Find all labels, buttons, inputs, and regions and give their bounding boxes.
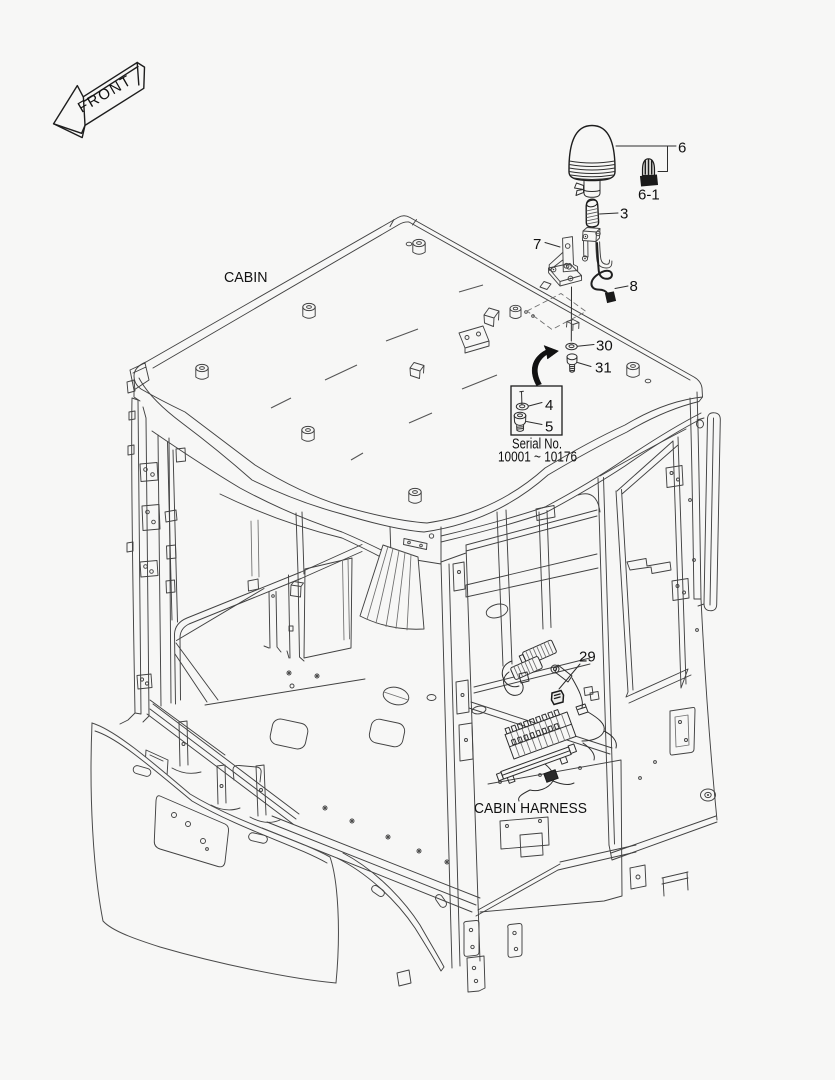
svg-text:8: 8: [630, 278, 638, 295]
svg-text:5: 5: [545, 419, 553, 436]
svg-text:29: 29: [579, 649, 596, 666]
svg-text:4: 4: [545, 397, 553, 414]
svg-text:7: 7: [533, 236, 541, 253]
svg-text:6: 6: [678, 140, 686, 157]
svg-text:CABIN HARNESS: CABIN HARNESS: [474, 801, 587, 817]
svg-text:10001 ~ 10176: 10001 ~ 10176: [498, 450, 577, 466]
svg-text:31: 31: [595, 360, 612, 377]
svg-text:6-1: 6-1: [638, 187, 660, 204]
svg-text:30: 30: [596, 338, 613, 355]
svg-text:CABIN: CABIN: [224, 270, 268, 286]
svg-text:3: 3: [620, 206, 628, 223]
